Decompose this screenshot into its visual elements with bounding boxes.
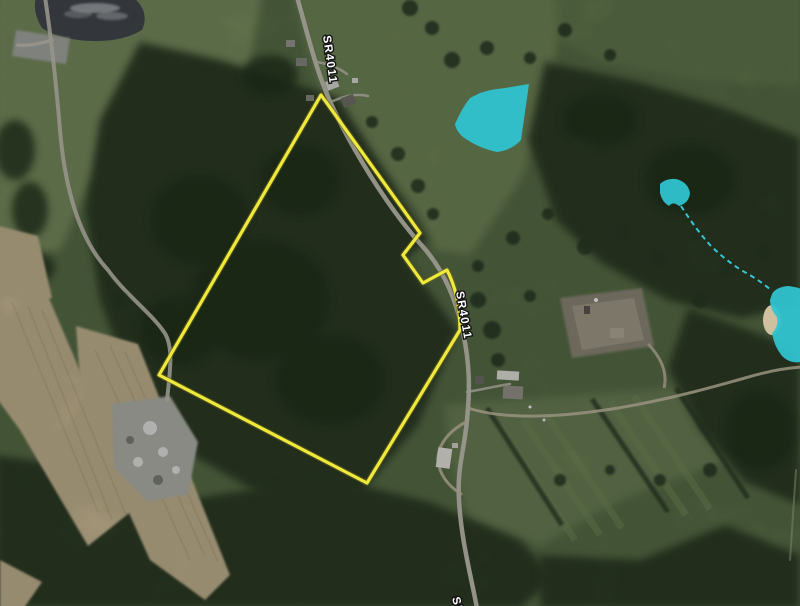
noise-overlay xyxy=(0,0,800,606)
map-canvas: SR4011 SR4011 SR4011 xyxy=(0,0,800,606)
satellite-map[interactable]: SR4011 SR4011 SR4011 xyxy=(0,0,800,606)
